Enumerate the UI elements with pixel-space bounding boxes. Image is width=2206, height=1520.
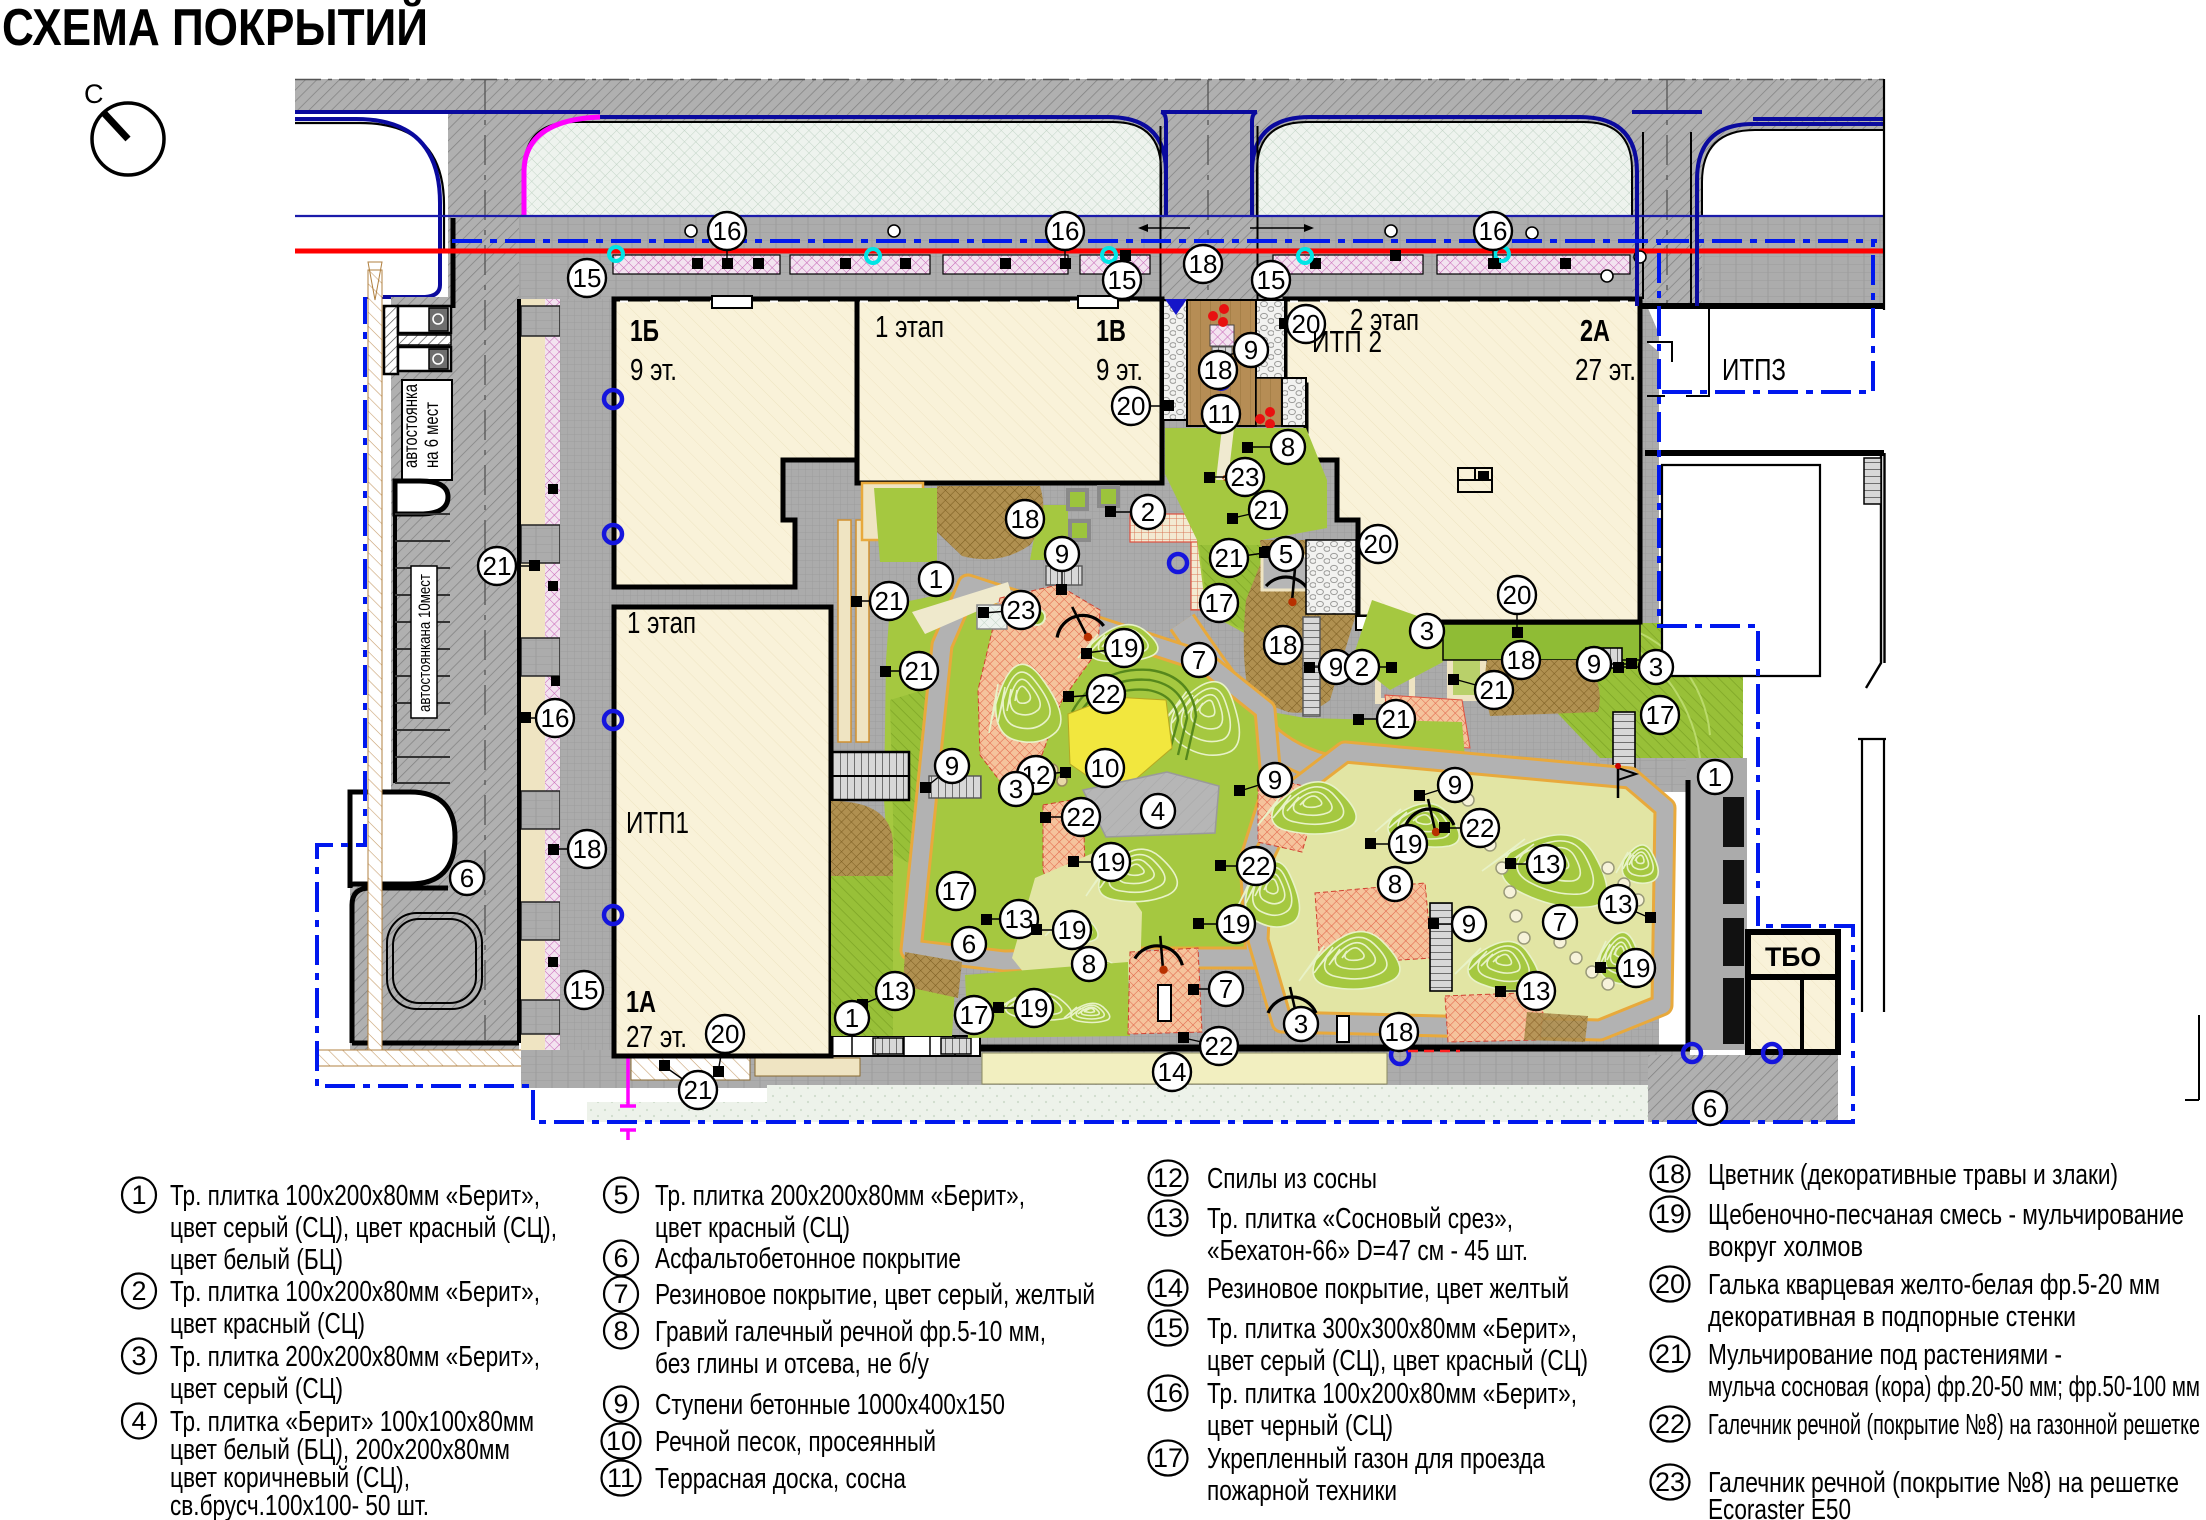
svg-text:21: 21 (1254, 495, 1283, 525)
svg-text:13: 13 (1153, 1203, 1183, 1233)
svg-text:8: 8 (1281, 432, 1295, 462)
svg-text:С: С (84, 79, 104, 109)
svg-text:Галька кварцевая желто-белая ф: Галька кварцевая желто-белая фр.5-20 мм (1708, 1269, 2160, 1301)
svg-text:на 6 мест: на 6 мест (422, 402, 443, 468)
svg-text:Щебеночно-песчаная смесь - мул: Щебеночно-песчаная смесь - мульчирование (1708, 1199, 2184, 1231)
svg-text:5: 5 (613, 1180, 628, 1210)
svg-text:19: 19 (1097, 847, 1126, 877)
svg-text:17: 17 (960, 1000, 989, 1030)
svg-text:вокруг холмов: вокруг холмов (1708, 1231, 1863, 1263)
svg-text:18: 18 (1269, 630, 1298, 660)
svg-text:3: 3 (1009, 774, 1023, 804)
svg-text:2: 2 (1355, 652, 1369, 682)
svg-text:ИТП 2: ИТП 2 (1312, 324, 1382, 359)
svg-text:7: 7 (613, 1279, 628, 1309)
svg-text:13: 13 (1522, 976, 1551, 1006)
svg-text:Тр. плитка 200х200х80мм «Берит: Тр. плитка 200х200х80мм «Берит», (170, 1341, 540, 1373)
svg-text:19: 19 (1622, 953, 1651, 983)
svg-text:17: 17 (1153, 1443, 1183, 1473)
svg-text:Тр. плитка 100х200х80мм «Берит: Тр. плитка 100х200х80мм «Берит», (1207, 1378, 1577, 1410)
svg-text:6: 6 (962, 929, 976, 959)
svg-text:9: 9 (1055, 539, 1069, 569)
svg-text:цвет черный (СЦ): цвет черный (СЦ) (1207, 1410, 1393, 1442)
svg-text:15: 15 (570, 975, 599, 1005)
svg-text:Спилы из сосны: Спилы из сосны (1207, 1163, 1377, 1195)
svg-text:Асфальтобетонное покрытие: Асфальтобетонное покрытие (655, 1243, 961, 1275)
svg-text:Речной песок, просеянный: Речной песок, просеянный (655, 1426, 936, 1458)
svg-text:11: 11 (607, 1463, 635, 1493)
svg-text:4: 4 (131, 1406, 146, 1436)
svg-text:6: 6 (1703, 1093, 1717, 1123)
svg-text:23: 23 (1007, 595, 1036, 625)
svg-text:19: 19 (1655, 1199, 1685, 1229)
svg-text:цвет красный (СЦ): цвет красный (СЦ) (655, 1212, 850, 1244)
svg-text:20: 20 (1503, 580, 1532, 610)
svg-text:СХЕМА ПОКРЫТИЙ: СХЕМА ПОКРЫТИЙ (2, 0, 428, 57)
svg-text:20: 20 (1117, 391, 1146, 421)
svg-text:27 эт.: 27 эт. (626, 1019, 687, 1054)
svg-text:21: 21 (684, 1075, 713, 1105)
svg-text:ТБО: ТБО (1765, 942, 1821, 972)
svg-text:цвет белый (БЦ): цвет белый (БЦ) (170, 1244, 343, 1276)
svg-text:16: 16 (1051, 216, 1080, 246)
svg-text:23: 23 (1655, 1467, 1685, 1497)
svg-text:22: 22 (1466, 813, 1495, 843)
svg-text:18: 18 (1507, 645, 1536, 675)
svg-text:5: 5 (1279, 539, 1293, 569)
svg-text:3: 3 (131, 1341, 146, 1371)
svg-text:19: 19 (1222, 909, 1251, 939)
svg-text:1Б: 1Б (630, 313, 659, 348)
svg-text:Резиновое покрытие, цвет желты: Резиновое покрытие, цвет желтый (1207, 1273, 1569, 1305)
svg-text:13: 13 (881, 976, 910, 1006)
svg-text:16: 16 (541, 703, 570, 733)
svg-text:21: 21 (1215, 543, 1244, 573)
svg-text:1В: 1В (1096, 313, 1126, 348)
svg-text:4: 4 (1151, 796, 1165, 826)
svg-text:Тр. плитка 200х200х80мм «Берит: Тр. плитка 200х200х80мм «Берит», (655, 1180, 1025, 1212)
svg-text:9: 9 (1587, 649, 1601, 679)
svg-text:Тр. плитка 100х200х80мм «Берит: Тр. плитка 100х200х80мм «Берит», (170, 1276, 540, 1308)
svg-text:19: 19 (1394, 829, 1423, 859)
svg-text:1А: 1А (626, 984, 656, 1019)
svg-text:9: 9 (1462, 909, 1476, 939)
svg-text:пожарной техники: пожарной техники (1207, 1475, 1397, 1507)
svg-text:1 этап: 1 этап (875, 309, 944, 344)
svg-text:автостоянкана 10мест: автостоянкана 10мест (415, 574, 434, 712)
svg-text:Тр. плитка 300х300х80мм «Берит: Тр. плитка 300х300х80мм «Берит», (1207, 1313, 1577, 1345)
svg-text:15: 15 (1257, 265, 1286, 295)
svg-text:15: 15 (1153, 1313, 1183, 1343)
svg-text:22: 22 (1092, 679, 1121, 709)
svg-text:18: 18 (1385, 1017, 1414, 1047)
svg-text:1: 1 (1708, 762, 1722, 792)
svg-text:21: 21 (875, 586, 904, 616)
svg-text:16: 16 (1479, 216, 1508, 246)
svg-text:23: 23 (1231, 462, 1260, 492)
svg-text:22: 22 (1655, 1409, 1685, 1439)
svg-text:7: 7 (1219, 974, 1233, 1004)
svg-text:9 эт.: 9 эт. (630, 352, 677, 387)
svg-text:19: 19 (1020, 993, 1049, 1023)
svg-text:17: 17 (1205, 588, 1234, 618)
svg-text:13: 13 (1005, 904, 1034, 934)
svg-text:14: 14 (1158, 1057, 1187, 1087)
svg-text:13: 13 (1604, 889, 1633, 919)
svg-text:20: 20 (711, 1019, 740, 1049)
svg-text:2: 2 (1141, 497, 1155, 527)
svg-text:17: 17 (1646, 700, 1675, 730)
svg-text:10: 10 (1091, 753, 1120, 783)
svg-text:9: 9 (1244, 335, 1258, 365)
svg-text:19: 19 (1110, 633, 1139, 663)
svg-text:Мульчирование под растениями -: Мульчирование под растениями - (1708, 1339, 2062, 1371)
svg-text:Укрепленный газон для проезда: Укрепленный газон для проезда (1207, 1443, 1546, 1475)
svg-text:7: 7 (1553, 907, 1567, 937)
svg-text:Тр. плитка «Сосновый срез»,: Тр. плитка «Сосновый срез», (1207, 1203, 1513, 1235)
svg-text:6: 6 (460, 863, 474, 893)
svg-text:9: 9 (1268, 765, 1282, 795)
svg-text:9: 9 (1448, 770, 1462, 800)
svg-text:автостоянка: автостоянка (401, 384, 422, 468)
svg-text:2А: 2А (1580, 313, 1610, 348)
svg-text:Ecoraster E50: Ecoraster E50 (1708, 1494, 1851, 1520)
svg-text:2: 2 (131, 1276, 146, 1306)
svg-text:18: 18 (1204, 355, 1233, 385)
svg-text:22: 22 (1067, 802, 1096, 832)
svg-text:21: 21 (483, 551, 512, 581)
svg-text:22: 22 (1242, 851, 1271, 881)
svg-text:17: 17 (942, 876, 971, 906)
svg-text:21: 21 (1382, 704, 1411, 734)
svg-text:цвет красный (СЦ): цвет красный (СЦ) (170, 1308, 365, 1340)
svg-text:15: 15 (573, 263, 602, 293)
svg-text:без глины и отсева, не б/у: без глины и отсева, не б/у (655, 1348, 929, 1380)
svg-text:20: 20 (1364, 529, 1393, 559)
svg-text:14: 14 (1153, 1273, 1183, 1303)
svg-text:20: 20 (1655, 1269, 1685, 1299)
svg-text:18: 18 (1189, 249, 1218, 279)
svg-text:21: 21 (905, 656, 934, 686)
svg-text:3: 3 (1420, 616, 1434, 646)
svg-text:Ступени бетонные 1000х400х150: Ступени бетонные 1000х400х150 (655, 1389, 1005, 1421)
svg-text:мульча сосновая (кора) фр.20-5: мульча сосновая (кора) фр.20-50 мм; фр.5… (1708, 1371, 2200, 1403)
svg-text:11: 11 (1208, 399, 1235, 429)
svg-text:8: 8 (1388, 869, 1402, 899)
svg-text:Цветник (декоративные травы и: Цветник (декоративные травы и злаки) (1708, 1159, 2118, 1191)
svg-text:18: 18 (573, 834, 602, 864)
svg-text:Резиновое покрытие, цвет серый: Резиновое покрытие, цвет серый, желтый (655, 1279, 1095, 1311)
svg-text:цвет серый (СЦ), цвет красный: цвет серый (СЦ), цвет красный (СЦ) (1207, 1345, 1588, 1377)
svg-text:27 эт.: 27 эт. (1575, 352, 1636, 387)
svg-text:19: 19 (1058, 915, 1087, 945)
svg-text:цвет серый (СЦ), цвет красный: цвет серый (СЦ), цвет красный (СЦ), (170, 1212, 557, 1244)
svg-text:«Бехатон-66» D=47 см - 45 шт.: «Бехатон-66» D=47 см - 45 шт. (1207, 1235, 1528, 1267)
svg-text:12: 12 (1153, 1163, 1183, 1193)
svg-text:Гравий галечный речной фр.5-10: Гравий галечный речной фр.5-10 мм, (655, 1316, 1046, 1348)
svg-text:3: 3 (1649, 652, 1663, 682)
svg-text:1: 1 (131, 1180, 146, 1210)
svg-text:21: 21 (1480, 675, 1509, 705)
svg-text:16: 16 (713, 216, 742, 246)
svg-text:1: 1 (929, 564, 943, 594)
svg-text:7: 7 (1192, 645, 1206, 675)
svg-text:21: 21 (1655, 1339, 1685, 1369)
svg-text:ИТП1: ИТП1 (626, 805, 689, 840)
svg-text:8: 8 (613, 1316, 628, 1346)
svg-text:9: 9 (613, 1389, 628, 1419)
svg-text:9 эт.: 9 эт. (1096, 352, 1143, 387)
svg-text:9: 9 (1329, 652, 1343, 682)
svg-text:3: 3 (1294, 1009, 1308, 1039)
svg-text:13: 13 (1532, 849, 1561, 879)
svg-text:22: 22 (1205, 1031, 1234, 1061)
svg-text:цвет серый (СЦ): цвет серый (СЦ) (170, 1373, 343, 1405)
svg-text:18: 18 (1011, 504, 1040, 534)
svg-text:Галечник речной (покрытие №8): Галечник речной (покрытие №8) на газонно… (1708, 1409, 2200, 1441)
svg-text:10: 10 (606, 1426, 636, 1456)
svg-text:9: 9 (945, 751, 959, 781)
svg-text:св.брусч.100х100- 50 шт.: св.брусч.100х100- 50 шт. (170, 1490, 429, 1520)
svg-text:Террасная доска, сосна: Террасная доска, сосна (655, 1463, 907, 1495)
svg-text:6: 6 (613, 1243, 628, 1273)
svg-text:8: 8 (1082, 949, 1096, 979)
svg-text:декоративная в подпорные стенк: декоративная в подпорные стенки (1708, 1301, 2076, 1333)
svg-text:1 этап: 1 этап (627, 605, 696, 640)
svg-text:1: 1 (845, 1003, 859, 1033)
svg-text:15: 15 (1108, 265, 1137, 295)
svg-text:ИТПЗ: ИТПЗ (1722, 352, 1786, 387)
svg-text:16: 16 (1153, 1378, 1183, 1408)
svg-text:18: 18 (1655, 1159, 1685, 1189)
svg-text:Тр. плитка 100х200х80мм «Берит: Тр. плитка 100х200х80мм «Берит», (170, 1180, 540, 1212)
